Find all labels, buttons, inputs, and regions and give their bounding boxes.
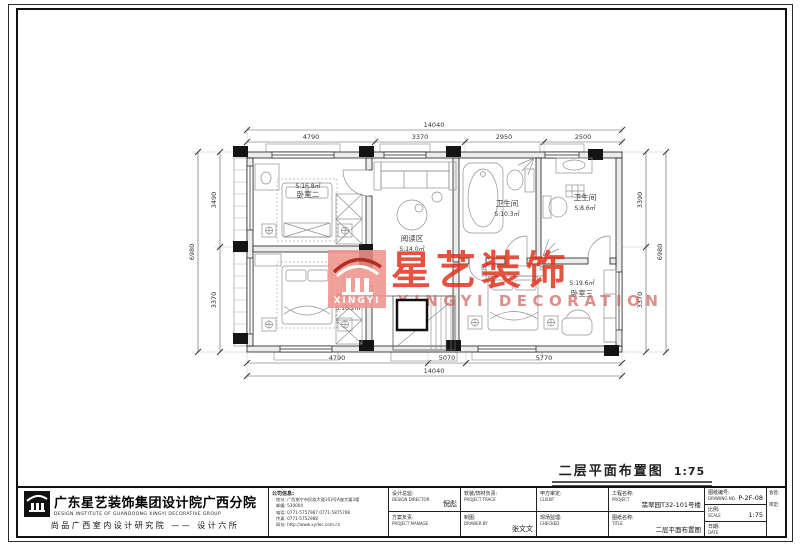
title-block: 广东星艺装饰集团设计院广西分院 DESIGN INSTITUTE OF GUAN… xyxy=(18,486,785,536)
sign-line1: 会签: xyxy=(769,490,783,496)
company-cell: 广东星艺装饰集团设计院广西分院 DESIGN INSTITUTE OF GUAN… xyxy=(18,488,268,536)
sheet-title-label: 图纸名称: xyxy=(612,514,701,521)
company-name-en: DESIGN INSTITUTE OF GUANDOONG XINGYI DEC… xyxy=(54,512,257,517)
date-label: 日期: xyxy=(708,523,763,530)
drawing-number-cell: 图纸编号: DRAWING NO. P-2F-08 xyxy=(705,488,766,505)
client-label: 甲方审定: xyxy=(540,490,605,497)
client-checked-cell: 甲方审定: CLIENT 现场监理: CHECKED xyxy=(536,488,608,536)
date-en: DATE xyxy=(708,530,763,535)
company-info-line: 网址: http://www.xydec.com.cn xyxy=(272,522,385,528)
stair-landing xyxy=(397,300,427,330)
material-drawer-cell: 软装/饰材负责: PROJECT TRACE 制图: DRAWER BY 张文文 xyxy=(460,488,536,536)
drawer-label: 制图: xyxy=(464,514,533,521)
project-manager-cell: 方案负责: PROJECT MANAGE xyxy=(389,512,460,536)
date-cell: 日期: DATE xyxy=(705,522,766,536)
company-logo-icon xyxy=(24,491,50,517)
company-name-cn: 广东星艺装饰集团设计院广西分院 xyxy=(54,492,257,511)
project-name-value: 翡翠园T32-101号楼 xyxy=(642,499,702,509)
checked-en: CHECKED xyxy=(540,521,605,526)
drawer-cell: 制图: DRAWER BY 张文文 xyxy=(461,512,536,536)
drawing-sheet: 14040 4790 3370 2950 2500 4790 5070 5770… xyxy=(0,0,800,547)
design-director-label: 设计总监: xyxy=(392,490,457,497)
sign-line2: 审定: xyxy=(769,502,783,508)
sign-cell: 会签: 审定: xyxy=(766,488,785,536)
drawing-number-value: P-2F-08 xyxy=(738,494,763,502)
project-title-cell: 工程名称: PROJECT 翡翠园T32-101号楼 图纸名称: TITLE 二… xyxy=(608,488,704,536)
company-subtitle: 尚品广西室内设计研究院 —— 设计六所 xyxy=(24,520,266,531)
company-info-cell: 公司信息: 地址: 广西南宁市民族大道103号A座大厦3楼 邮编: 530000… xyxy=(268,488,388,536)
director-manager-cell: 设计总监: DESIGN DIRECTOR 倪彪 方案负责: PROJECT M… xyxy=(388,488,460,536)
sheet-title-value: 二层平面布置图 xyxy=(656,524,702,534)
project-manager-en: PROJECT MANAGE xyxy=(392,521,457,526)
number-scale-date-cell: 图纸编号: DRAWING NO. P-2F-08 比例: SCALE 1:75… xyxy=(704,488,766,536)
scale-value: 1:75 xyxy=(748,511,763,519)
plan-caption: 二层平面布置图1:75 xyxy=(552,460,712,486)
sheet-title-cell: 图纸名称: TITLE 二层平面布置图 xyxy=(609,512,704,536)
project-name-cell: 工程名称: PROJECT 翡翠园T32-101号楼 xyxy=(609,488,704,512)
material-cell: 软装/饰材负责: PROJECT TRACE xyxy=(461,488,536,512)
project-name-label: 工程名称: xyxy=(612,490,701,497)
material-en: PROJECT TRACE xyxy=(464,497,533,502)
design-director-cell: 设计总监: DESIGN DIRECTOR 倪彪 xyxy=(389,488,460,512)
checked-label: 现场监理: xyxy=(540,514,605,521)
plan-caption-title: 二层平面布置图 xyxy=(559,464,664,479)
client-en: CLIENT xyxy=(540,497,605,502)
project-manager-label: 方案负责: xyxy=(392,514,457,521)
design-director-value: 倪彪 xyxy=(443,499,457,509)
drawer-value: 张文文 xyxy=(512,524,533,534)
plan-caption-scale: 1:75 xyxy=(674,465,705,478)
scale-cell: 比例: SCALE 1:75 xyxy=(705,505,766,522)
checked-cell: 现场监理: CHECKED xyxy=(537,512,608,536)
client-cell: 甲方审定: CLIENT xyxy=(537,488,608,512)
material-label: 软装/饰材负责: xyxy=(464,490,533,497)
company-info-label: 公司信息: xyxy=(272,490,385,497)
